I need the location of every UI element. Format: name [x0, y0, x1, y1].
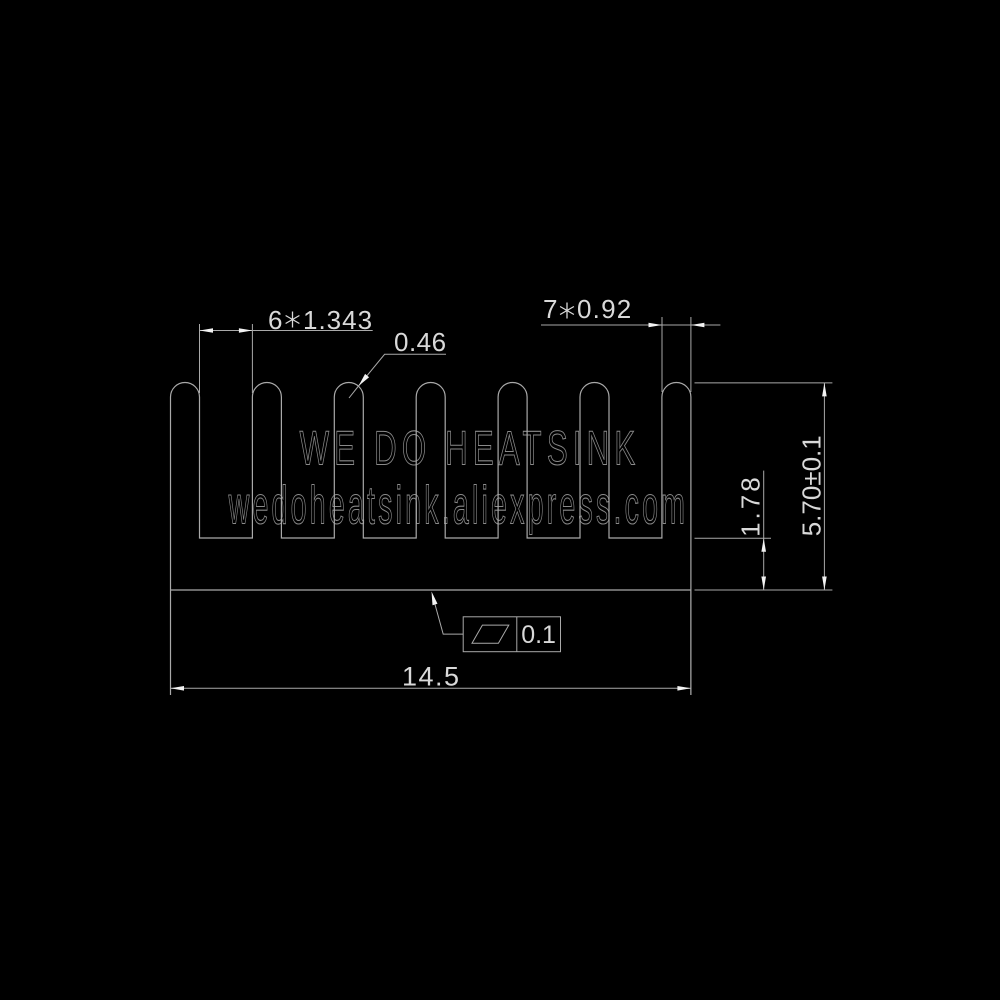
svg-text:6: 6 — [268, 305, 282, 335]
svg-text:wedoheatsink.aliexpress.com: wedoheatsink.aliexpress.com — [228, 476, 688, 536]
svg-text:0.92: 0.92 — [577, 294, 632, 324]
svg-text:14.5: 14.5 — [402, 662, 461, 692]
svg-text:7: 7 — [543, 294, 557, 324]
svg-text:0.46: 0.46 — [394, 327, 447, 357]
svg-text:WE DO HEATSINK: WE DO HEATSINK — [300, 421, 641, 476]
svg-text:5.70±0.1: 5.70±0.1 — [797, 435, 827, 536]
svg-text:1.343: 1.343 — [303, 305, 373, 335]
svg-text:1.78: 1.78 — [735, 474, 765, 537]
svg-text:0.1: 0.1 — [521, 621, 556, 649]
